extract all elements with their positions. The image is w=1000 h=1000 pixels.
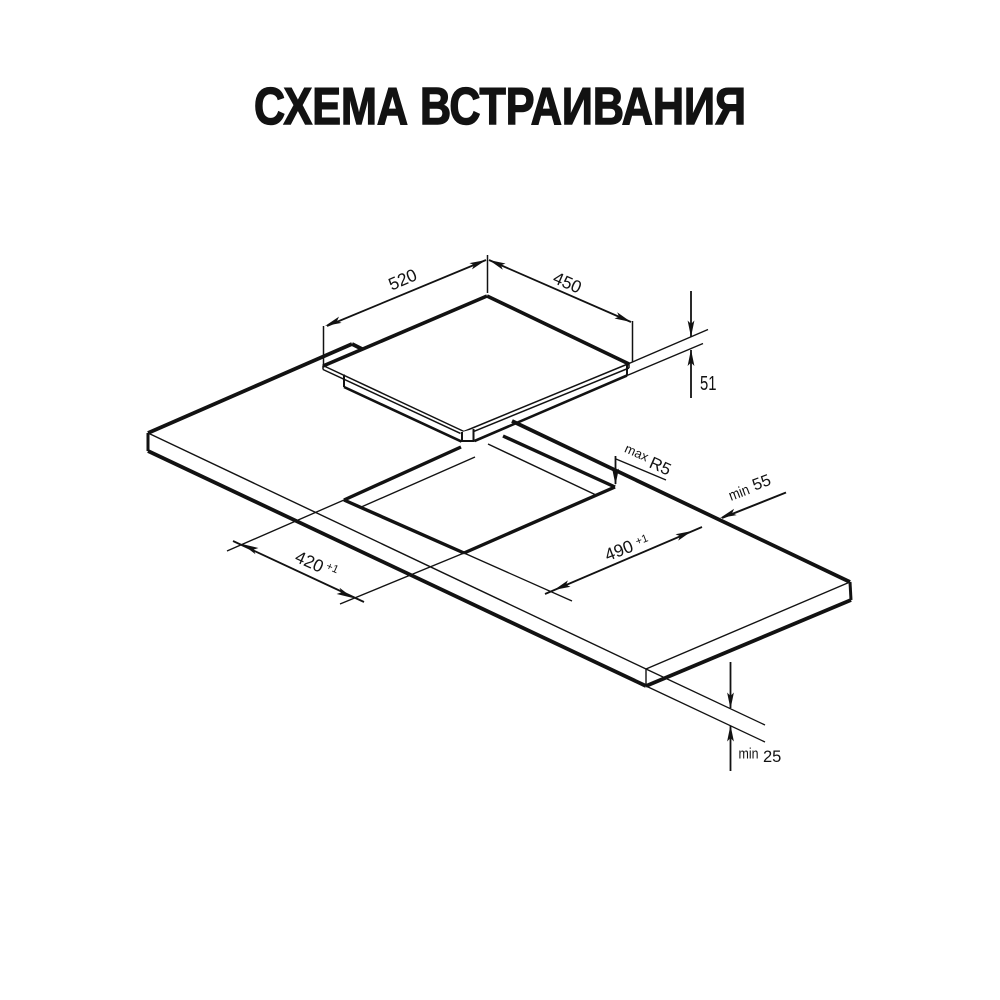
svg-text:+1: +1 xyxy=(324,560,340,576)
svg-text:max: max xyxy=(622,441,651,465)
svg-text:51: 51 xyxy=(700,373,717,395)
svg-text:420: 420 xyxy=(292,546,327,576)
svg-text:490: 490 xyxy=(602,536,636,565)
svg-text:min: min xyxy=(726,481,752,504)
svg-text:R5: R5 xyxy=(646,453,674,479)
svg-text:25: 25 xyxy=(763,748,781,766)
svg-text:СХЕМА ВСТРАИВАНИЯ: СХЕМА ВСТРАИВАНИЯ xyxy=(254,77,746,135)
svg-text:450: 450 xyxy=(550,268,585,298)
svg-text:min: min xyxy=(739,746,759,763)
svg-text:55: 55 xyxy=(750,471,774,494)
svg-text:+1: +1 xyxy=(634,532,650,548)
